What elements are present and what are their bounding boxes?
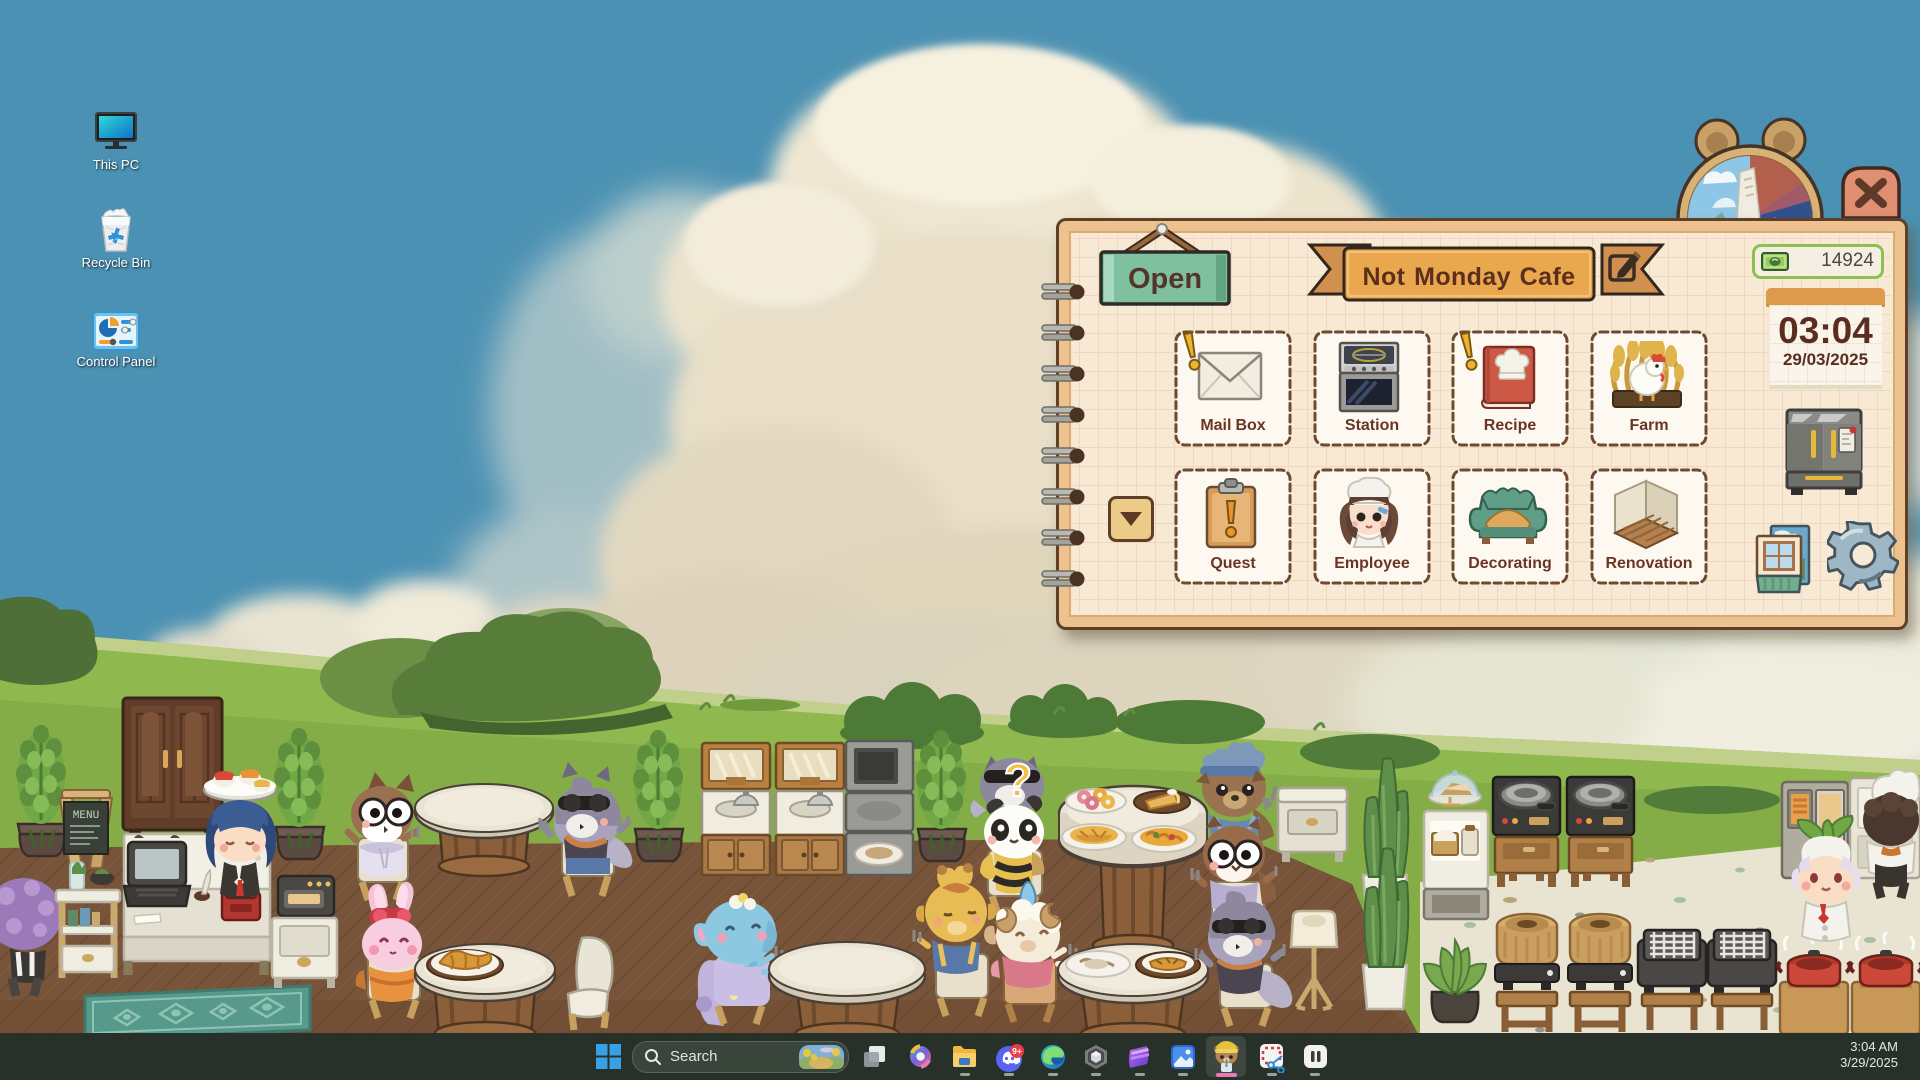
svg-text:Not Monday Cafe: Not Monday Cafe [1363, 263, 1576, 291]
svg-text:MENU: MENU [73, 810, 99, 822]
svg-text:?: ? [1004, 754, 1032, 806]
svg-text:Open: Open [1128, 263, 1202, 295]
svg-text:9+: 9+ [1012, 1046, 1022, 1056]
